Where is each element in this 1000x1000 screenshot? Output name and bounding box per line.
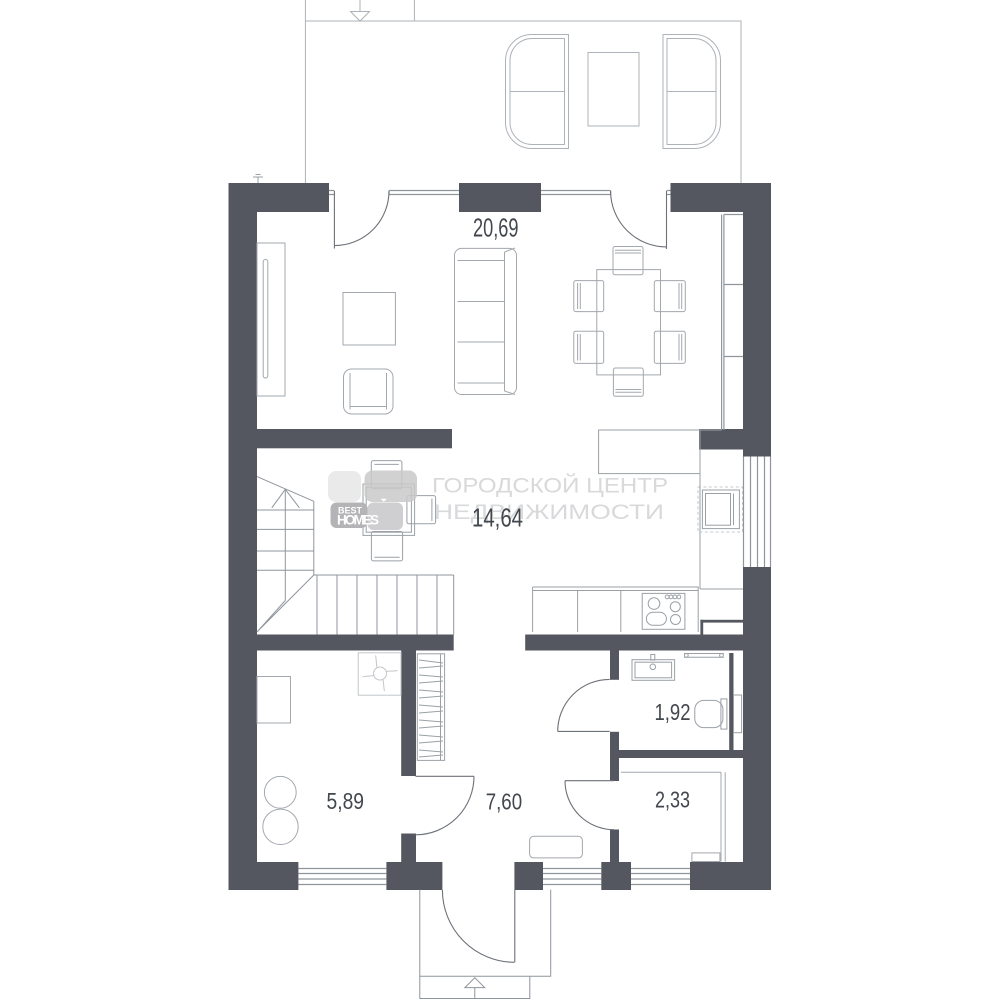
svg-text:НЕДВИЖИМОСТИ: НЕДВИЖИМОСТИ [434,501,664,524]
svg-text:1,92: 1,92 [655,699,691,725]
svg-text:20,69: 20,69 [473,213,519,243]
svg-text:14,64: 14,64 [472,503,523,533]
svg-text:7,60: 7,60 [486,789,522,815]
svg-text:ГОРОДСКОЙ ЦЕНТР: ГОРОДСКОЙ ЦЕНТР [432,474,668,498]
svg-text:5,89: 5,89 [327,788,365,814]
svg-text:2,33: 2,33 [655,787,690,813]
svg-text:HOMES: HOMES [337,513,379,528]
